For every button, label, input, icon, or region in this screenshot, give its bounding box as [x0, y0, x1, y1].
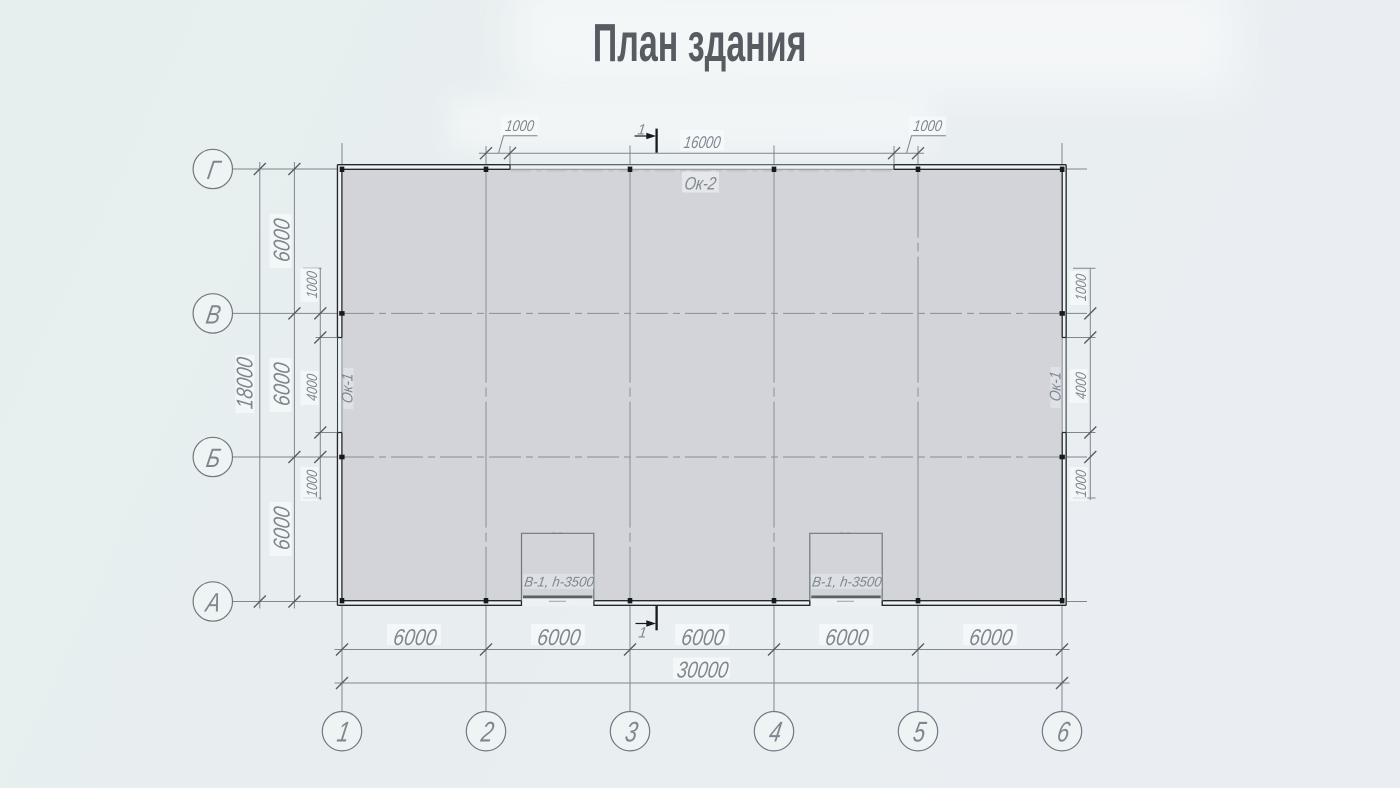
svg-text:6000: 6000 [269, 217, 295, 264]
svg-text:6000: 6000 [968, 624, 1015, 650]
svg-text:18000: 18000 [233, 355, 258, 410]
svg-text:Ок-1: Ок-1 [340, 372, 357, 404]
svg-text:30000: 30000 [675, 658, 730, 683]
svg-text:1000: 1000 [504, 118, 535, 135]
svg-text:В-1, h-3500: В-1, h-3500 [523, 574, 595, 589]
svg-text:1000: 1000 [912, 118, 943, 135]
svg-text:1000: 1000 [304, 270, 320, 299]
svg-text:6000: 6000 [392, 624, 439, 650]
svg-text:В-1, h-3500: В-1, h-3500 [811, 574, 883, 589]
svg-text:6000: 6000 [269, 361, 295, 408]
svg-text:16000: 16000 [682, 133, 722, 152]
svg-text:1000: 1000 [1073, 468, 1089, 497]
svg-text:6000: 6000 [269, 505, 295, 552]
svg-text:4000: 4000 [1073, 371, 1089, 400]
svg-text:Ок-1: Ок-1 [1048, 370, 1065, 402]
svg-text:6000: 6000 [824, 624, 871, 650]
svg-text:6000: 6000 [536, 624, 583, 650]
svg-text:1: 1 [637, 625, 647, 641]
svg-text:1000: 1000 [1073, 272, 1089, 301]
svg-text:6000: 6000 [680, 624, 727, 650]
svg-text:4000: 4000 [304, 372, 320, 401]
svg-text:Ок-2: Ок-2 [683, 173, 717, 194]
svg-text:1000: 1000 [304, 468, 320, 497]
